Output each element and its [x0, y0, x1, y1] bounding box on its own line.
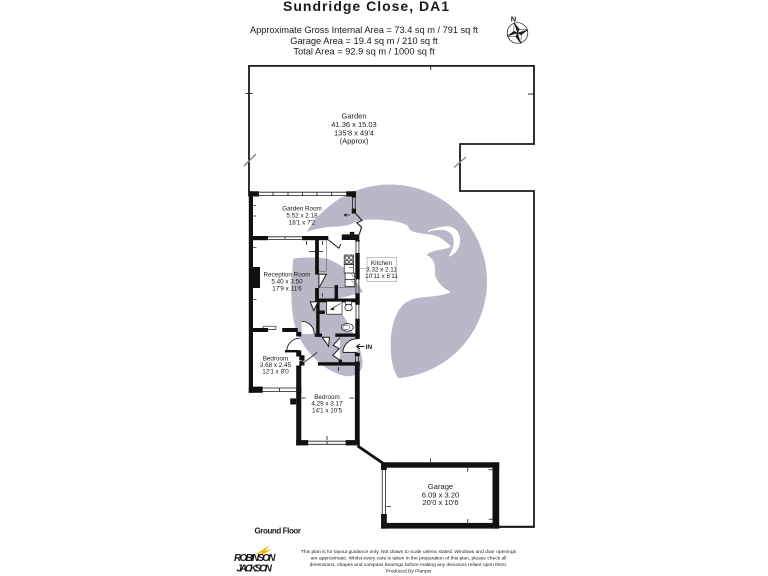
svg-text:17'9 x 11'6: 17'9 x 11'6 — [272, 285, 302, 292]
svg-text:(Approx): (Approx) — [340, 137, 369, 146]
svg-text:Garage Area = 19.4 sq m / 210: Garage Area = 19.4 sq m / 210 sq ft — [290, 36, 438, 46]
svg-text:Sundridge Close, DA1: Sundridge Close, DA1 — [283, 0, 449, 14]
svg-text:are approximate. Whilst every: are approximate. Whilst every care is ta… — [311, 556, 507, 562]
svg-text:12'1 x 8'0: 12'1 x 8'0 — [262, 369, 289, 376]
svg-text:N: N — [511, 15, 516, 24]
svg-text:18'1 x 7'2: 18'1 x 7'2 — [289, 219, 316, 226]
svg-text:Total Area = 92.9 sq m / 1000: Total Area = 92.9 sq m / 1000 sq ft — [293, 47, 435, 57]
svg-text:Produced By Planpix: Produced By Planpix — [386, 568, 432, 574]
svg-text:ROBINSON: ROBINSON — [234, 553, 276, 564]
svg-text:Approximate Gross Internal Are: Approximate Gross Internal Area = 73.4 s… — [250, 25, 478, 35]
svg-text:dimensions, shapes and compass: dimensions, shapes and compass bearings … — [310, 562, 508, 568]
svg-text:14'1 x 10'5: 14'1 x 10'5 — [312, 407, 343, 414]
svg-text:Ground Floor: Ground Floor — [255, 527, 302, 536]
svg-text:20'0 x 10'6: 20'0 x 10'6 — [422, 498, 458, 507]
svg-text:10'11 x 6'11: 10'11 x 6'11 — [365, 273, 398, 280]
svg-text:This plan is for layout guidan: This plan is for layout guidance only. N… — [301, 549, 517, 555]
svg-text:IN: IN — [366, 344, 373, 351]
svg-text:JACKSON: JACKSON — [237, 564, 273, 575]
